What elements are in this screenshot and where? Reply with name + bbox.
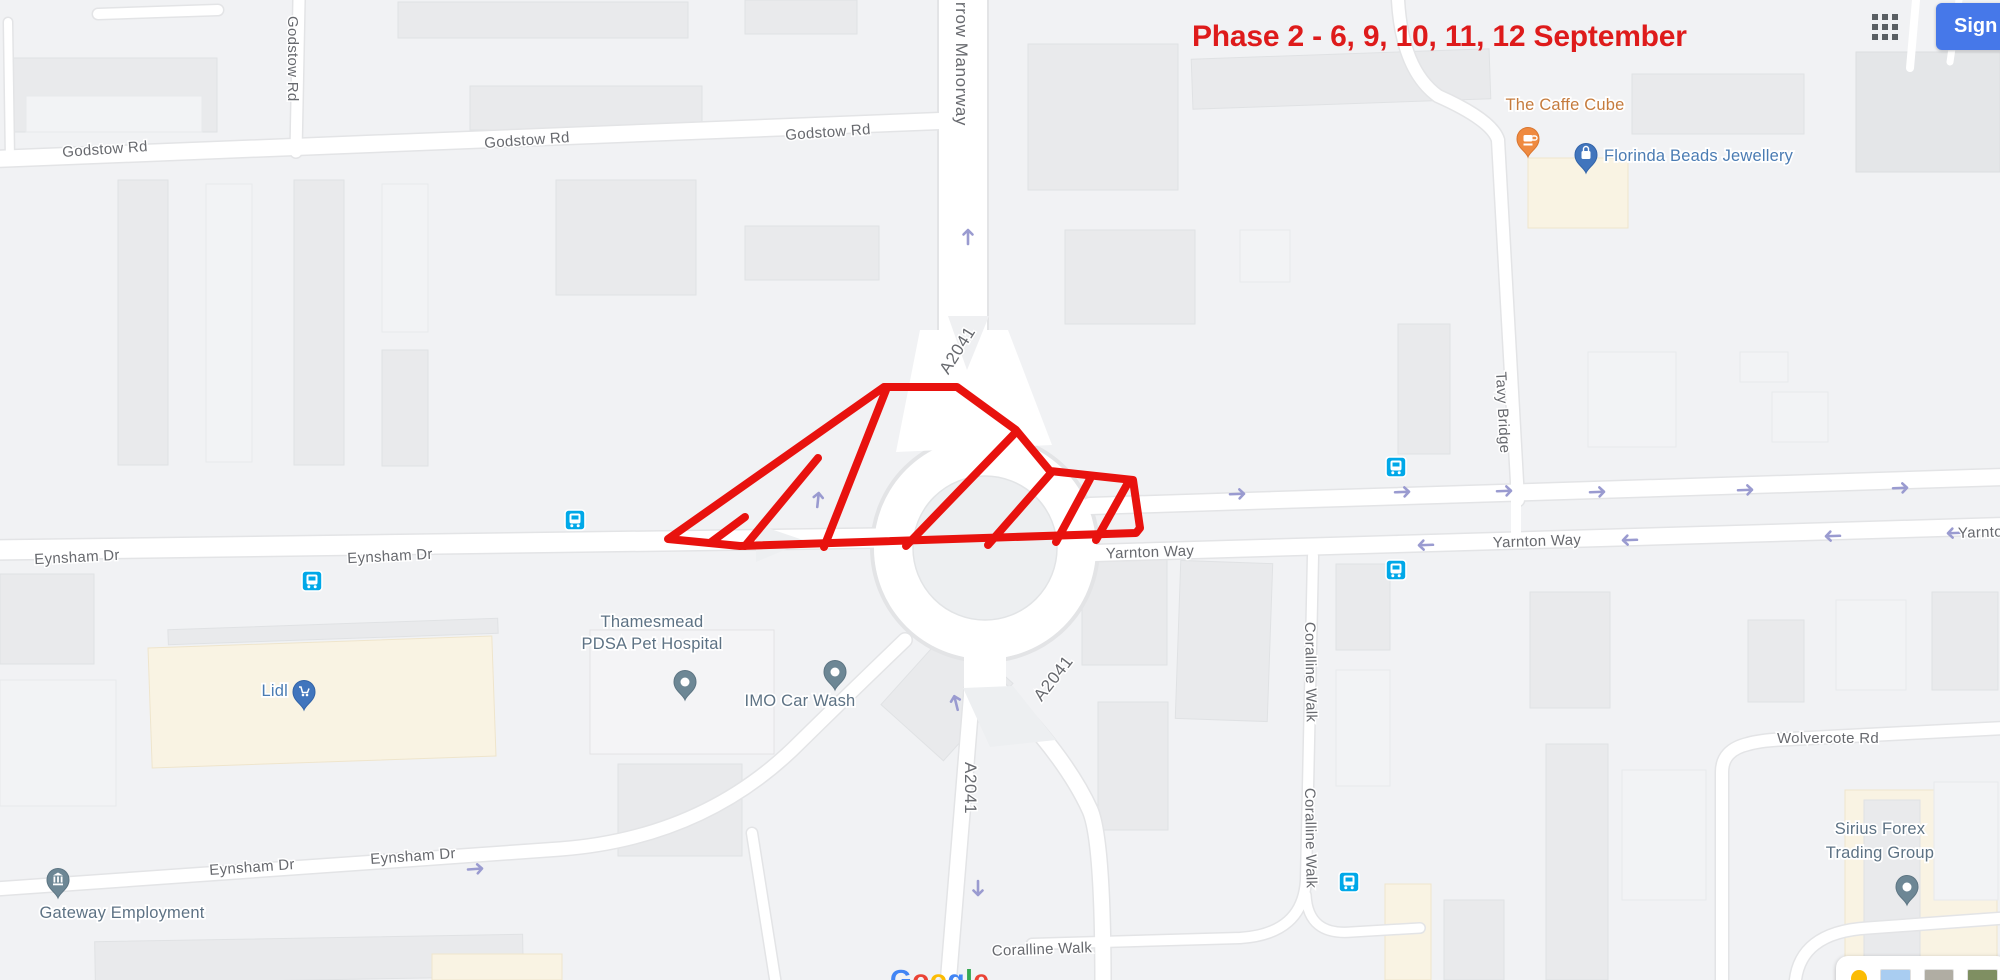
terrain-thumbnail[interactable] [1967,969,1998,980]
google-watermark-letter: g [948,964,966,980]
poi-label-lidl[interactable]: Lidl [262,682,289,700]
road-label-eynsham-dr: Eynsham Dr [347,546,433,567]
google-watermark-letter: o [912,964,930,980]
poi-label-caffe-cube[interactable]: The Caffe Cube [1506,96,1625,114]
road-label-coralline-walk: Coralline Walk [1301,622,1320,723]
imagery-controls-panel [1836,956,2000,980]
road-label-yarnton-way: Yarnton Way [1493,531,1582,551]
map-thumbnail[interactable] [1880,969,1911,980]
sign-in-button[interactable]: Sign in [1936,3,2000,50]
road-label-wolvercote-rd: Wolvercote Rd [1777,730,1879,747]
road-label-coralline-walk: Coralline Walk [1301,788,1320,889]
poi-label-florinda-beads[interactable]: Florinda Beads Jewellery [1604,147,1794,165]
google-watermark-letter: e [973,964,989,980]
road-label-godstow-rd: Godstow Rd [284,16,301,102]
road-label-yarnton-way: Yarnton Way [1106,542,1195,562]
bus-transit-icon[interactable] [1386,457,1406,477]
svg-text:PDSA Pet Hospital[interactable]: PDSA Pet Hospital [582,635,723,653]
bus-transit-icon[interactable] [565,510,585,530]
poi-label-gateway-employment[interactable]: Gateway Employment [40,904,205,922]
pegman-icon[interactable] [1851,970,1867,980]
google-watermark-letter: o [930,964,948,980]
bus-transit-icon[interactable] [1386,560,1406,580]
road-label-coralline-walk: Coralline Walk [992,939,1093,959]
satellite-thumbnail[interactable] [1924,969,1955,980]
road-label-harrow-manorway: rrow Manorway [952,2,971,126]
generic-pin-icon[interactable] [824,661,846,691]
google-watermark-letter: G [890,964,912,980]
svg-text:Sirius Forex[interactable]: Sirius Forex [1835,820,1926,838]
map-canvas[interactable]: Godstow Rd Godstow Rd Godstow Rd Godstow… [0,0,2000,980]
road-label-a2041: A2041 [1030,652,1077,705]
bus-transit-icon[interactable] [302,571,322,591]
apps-grid-icon[interactable] [1869,11,1901,43]
coffee-cup-pin-icon[interactable] [1517,128,1539,158]
road-label-tavy-bridge: Tavy Bridge [1492,371,1513,453]
apps-grid-icon-glyph [1869,11,1901,43]
road-label-yarnton-way-partial: Yarnton Way [1958,522,2000,542]
bus-transit-icon[interactable] [1339,872,1359,892]
phase-annotation-text: Phase 2 - 6, 9, 10, 11, 12 September [1192,20,1752,54]
poi-label-imo-car-wash[interactable]: IMO Car Wash [745,692,856,710]
svg-text:Trading Group[interactable]: Trading Group [1826,844,1934,862]
svg-text:Thamesmead[interactable]: Thamesmead [601,613,704,631]
google-watermark[interactable]: Google [890,964,989,980]
bank-pin-icon[interactable] [47,869,69,899]
road-label-eynsham-dr: Eynsham Dr [34,547,120,568]
road-label-a2041: A2041 [961,762,980,814]
map-graphics: Godstow Rd Godstow Rd Godstow Rd Godstow… [0,0,2000,980]
